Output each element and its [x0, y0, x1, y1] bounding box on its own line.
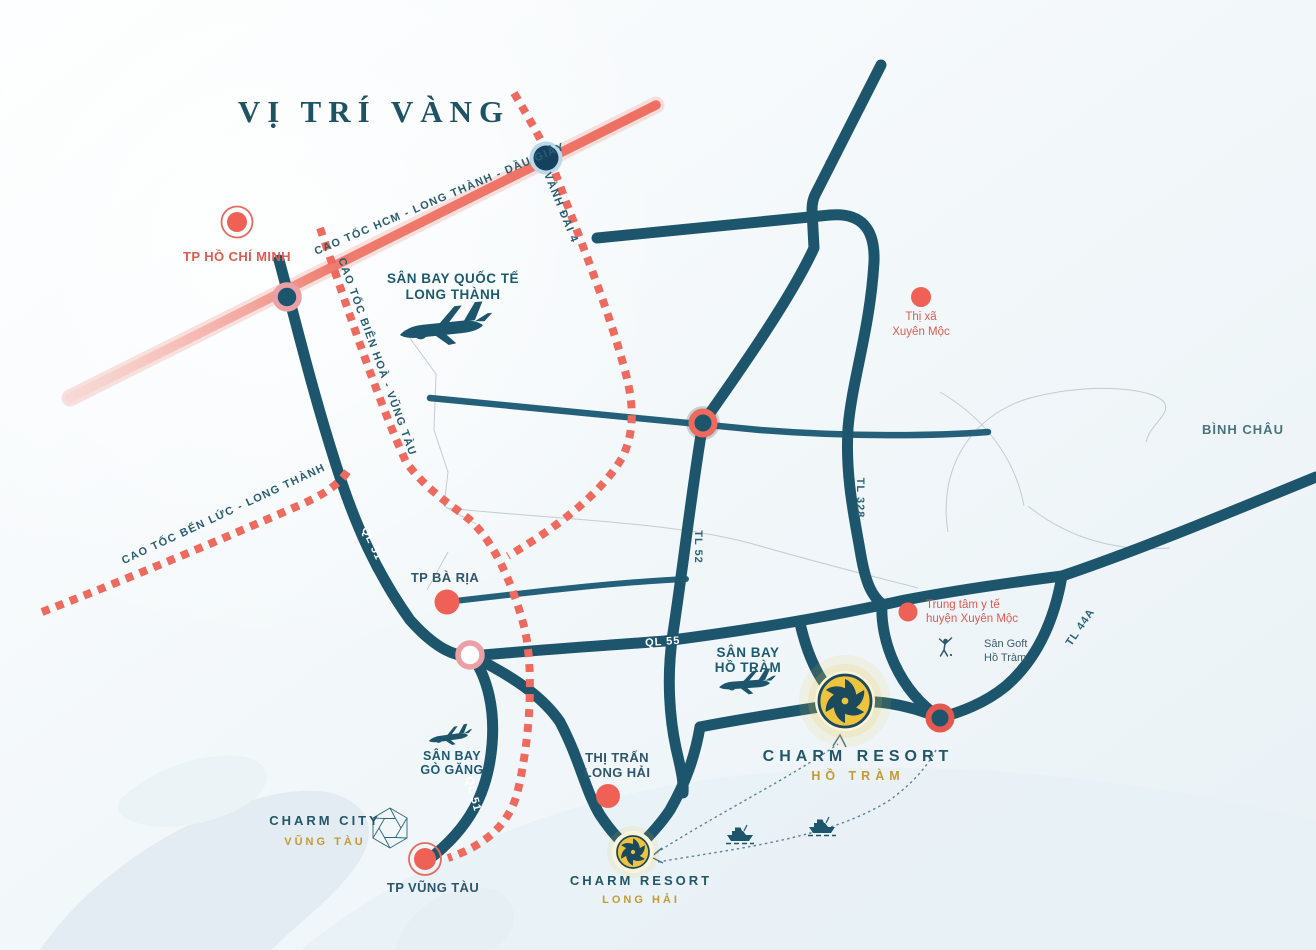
label-medical-center: huyện Xuyên Mộc [926, 613, 1018, 625]
label-charm-city: CHARM CITY [269, 813, 381, 828]
label-xuyen-moc: Xuyên Mộc [892, 326, 950, 338]
label-charm-resort-long-hai: CHARM RESORT [570, 873, 712, 888]
label-ho-tram-airport: HỒ TRÀM [715, 660, 782, 675]
marker-tp-hcm [227, 212, 247, 232]
junction-ho-tram-east [929, 707, 952, 730]
junction-hcm-highway [275, 285, 299, 309]
label-long-thanh-airport: SÂN BAY QUỐC TẾ [387, 271, 519, 286]
label-binh-chau: BÌNH CHÂU [1202, 422, 1284, 437]
location-map: VỊ TRÍ VÀNG CAO TỐC HCM - LONG THÀNH - D… [0, 0, 1316, 950]
label-golf: Sân Goft [984, 638, 1027, 650]
label-long-hai-town: LONG HẢI [584, 765, 651, 780]
marker-tp-ba-ria [435, 590, 460, 615]
label-tl52: TL 52 [692, 530, 704, 564]
label-ql55: QL 55 [645, 635, 681, 649]
label-long-thanh-airport: LONG THÀNH [406, 287, 501, 302]
charm-resort-ho-tram-badge [799, 655, 891, 747]
label-tp-ba-ria: TP BÀ RỊA [411, 570, 480, 585]
label-golf: Hồ Tràm [984, 652, 1026, 664]
label-tp-hcm: TP HỒ CHÍ MINH [183, 249, 291, 264]
label-charm-resort-long-hai: LONG HẢI [602, 893, 680, 906]
marker-medical-center [899, 603, 918, 622]
label-go-gang-airport: GÒ GĂNG [420, 762, 483, 777]
marker-tp-vung-tau [414, 848, 436, 870]
junction-tl52 [692, 412, 715, 435]
page-title: VỊ TRÍ VÀNG [238, 94, 510, 129]
charm-pinwheel-logo [617, 836, 649, 868]
map-canvas: VỊ TRÍ VÀNG CAO TỐC HCM - LONG THÀNH - D… [0, 0, 1316, 950]
label-charm-city: VŨNG TÀU [284, 835, 365, 848]
label-medical-center: Trung tâm y tế [926, 599, 1000, 611]
label-go-gang-airport: SÂN BAY [423, 748, 481, 763]
label-xuyen-moc: Thị xã [905, 311, 937, 323]
label-tl328: TL 328 [854, 478, 866, 519]
charm-pinwheel-logo [819, 675, 871, 727]
junction-ql51-ql55 [458, 643, 482, 667]
label-ho-tram-airport: SÂN BAY [716, 645, 779, 660]
label-charm-resort-ho-tram: CHARM RESORT [763, 748, 954, 765]
charm-resort-long-hai-badge [607, 826, 659, 878]
marker-long-hai-town [596, 784, 620, 808]
label-charm-resort-ho-tram: HỒ TRÀM [811, 768, 904, 783]
label-tp-vung-tau: TP VŨNG TÀU [387, 880, 479, 895]
marker-xuyen-moc [911, 287, 931, 307]
label-long-hai-town: THỊ TRẤN [585, 750, 649, 765]
